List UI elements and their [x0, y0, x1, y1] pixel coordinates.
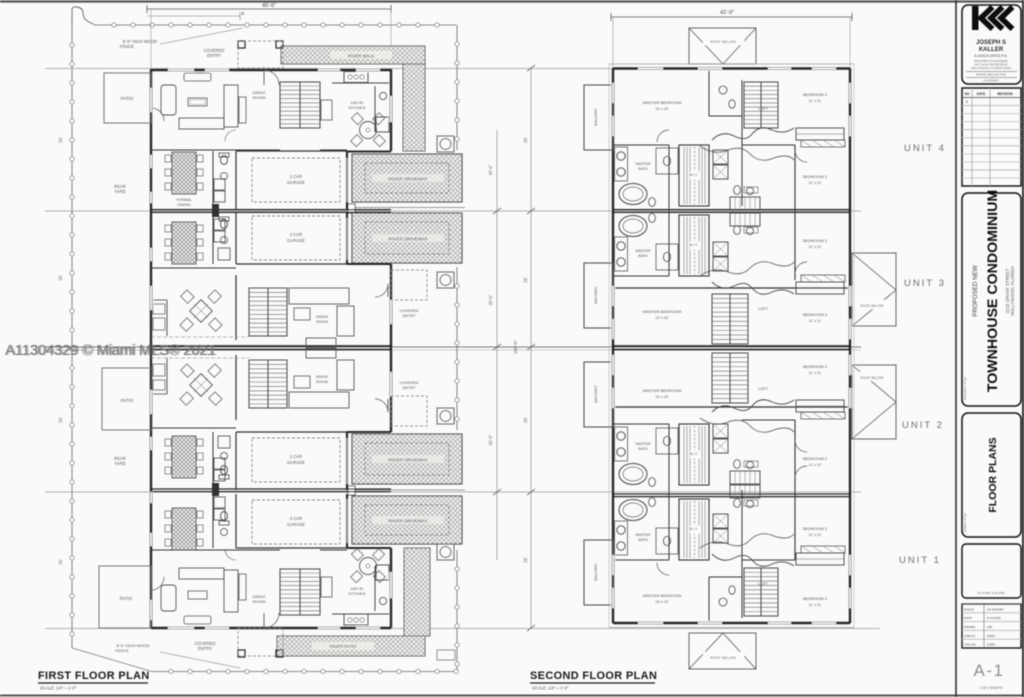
svg-text:ENTRY: ENTRY	[198, 646, 212, 651]
svg-text:11' x 11': 11' x 11'	[809, 99, 822, 103]
svg-text:FENCE: FENCE	[120, 44, 134, 49]
svg-text:11' x 11': 11' x 11'	[809, 603, 822, 607]
svg-text:BALCONY: BALCONY	[594, 563, 598, 581]
svg-text:PAVER DRIVEWAY: PAVER DRIVEWAY	[388, 519, 427, 524]
svg-text:COVERED: COVERED	[400, 309, 419, 313]
svg-text:SCALE: 1/4" = 1'-0": SCALE: 1/4" = 1'-0"	[40, 686, 77, 691]
svg-text:A-1: A-1	[974, 661, 1005, 680]
svg-text:MASTER BEDROOM: MASTER BEDROOM	[643, 593, 681, 598]
svg-text:BEDROOM 2: BEDROOM 2	[803, 526, 828, 531]
svg-text:COVERED: COVERED	[400, 381, 419, 385]
svg-text:PHONE (954) 920-5746: PHONE (954) 920-5746	[976, 73, 1006, 77]
svg-text:BEDROOM 3: BEDROOM 3	[803, 92, 828, 97]
svg-text:PATIO: PATIO	[121, 398, 134, 403]
svg-text:ENTRY: ENTRY	[403, 386, 416, 390]
svg-text:2 CAR: 2 CAR	[290, 174, 302, 179]
svg-text:11' x 12': 11' x 12'	[809, 181, 822, 185]
svg-text:BATH: BATH	[638, 447, 648, 451]
svg-text:PATIO: PATIO	[121, 96, 134, 101]
svg-text:YARD: YARD	[114, 461, 125, 466]
svg-text:11' x 12': 11' x 12'	[809, 245, 822, 249]
svg-text:W.I.C.: W.I.C.	[689, 452, 698, 456]
svg-text:UNIT 1: UNIT 1	[899, 555, 941, 566]
svg-text:DATE: DATE	[977, 92, 985, 96]
svg-text:25': 25'	[58, 417, 63, 423]
svg-text:ROOM: ROOM	[316, 320, 328, 324]
svg-text:1 OF 2 SHEETS: 1 OF 2 SHEETS	[979, 686, 1002, 690]
svg-text:AA 0003447: AA 0003447	[983, 79, 999, 83]
svg-text:REVISION: REVISION	[997, 92, 1013, 96]
svg-text:UNIT 2: UNIT 2	[902, 420, 944, 431]
svg-text:LOFT: LOFT	[758, 307, 768, 311]
svg-text:A11304329 © Miami MLS® 2021: A11304329 © Miami MLS® 2021	[5, 343, 215, 359]
svg-text:BATH: BATH	[638, 538, 648, 542]
svg-text:MASTER BEDROOM: MASTER BEDROOM	[643, 100, 681, 105]
svg-text:EAT-IN: EAT-IN	[351, 101, 363, 105]
svg-text:25': 25'	[523, 277, 528, 283]
svg-text:ROOM: ROOM	[253, 599, 265, 604]
svg-text:GARAGE: GARAGE	[287, 238, 305, 243]
svg-text:GREAT: GREAT	[316, 375, 329, 379]
svg-text:FORMAL: FORMAL	[176, 198, 192, 202]
svg-text:YARD: YARD	[114, 189, 125, 194]
svg-text:UNIT 4: UNIT 4	[904, 143, 946, 154]
svg-text:BATH: BATH	[638, 167, 648, 171]
svg-text:SCALE: SCALE	[964, 607, 974, 611]
svg-text:25': 25'	[523, 557, 528, 563]
svg-text:PAVER DRIVEWAY: PAVER DRIVEWAY	[388, 237, 427, 242]
svg-text:AS SHOWN: AS SHOWN	[987, 607, 1003, 611]
svg-text:PAVER PATIO: PAVER PATIO	[330, 644, 357, 649]
svg-text:MASTER: MASTER	[636, 162, 651, 166]
svg-text:2 CAR: 2 CAR	[290, 516, 302, 521]
svg-text:JSK: JSK	[987, 625, 993, 629]
svg-text:14' x 15': 14' x 15'	[655, 395, 668, 399]
svg-text:MASTER BEDROOM: MASTER BEDROOM	[643, 309, 681, 314]
svg-text:45'-6": 45'-6"	[262, 3, 276, 9]
svg-text:W.I.C.: W.I.C.	[689, 527, 698, 531]
svg-text:PAVER WALK: PAVER WALK	[348, 54, 375, 59]
svg-text:ENTRY: ENTRY	[207, 53, 221, 58]
svg-text:PROJECT TITLE: PROJECT TITLE	[963, 377, 967, 400]
svg-text:FLOOR PLANS: FLOOR PLANS	[987, 437, 999, 512]
svg-text:JOB NO: JOB NO	[964, 634, 976, 638]
svg-text:25': 25'	[523, 137, 528, 143]
svg-text:BEDROOM 2: BEDROOM 2	[803, 456, 828, 461]
svg-text:PATIO: PATIO	[120, 596, 133, 601]
svg-text:20'-0": 20'-0"	[488, 164, 493, 175]
svg-text:GARAGE: GARAGE	[287, 522, 305, 527]
svg-text:25': 25'	[58, 559, 63, 565]
svg-text:HOLLYWOOD, FLORIDA 33020: HOLLYWOOD, FLORIDA 33020	[971, 66, 1011, 70]
svg-text:MASTER BEDROOM: MASTER BEDROOM	[643, 388, 681, 393]
svg-text:14' x 15': 14' x 15'	[655, 316, 668, 320]
svg-text:LOFT: LOFT	[758, 582, 768, 586]
svg-text:GREAT: GREAT	[316, 315, 329, 319]
svg-text:LOFT: LOFT	[758, 387, 768, 391]
svg-text:42'-0": 42'-0"	[720, 10, 734, 16]
svg-text:KITCHEN: KITCHEN	[349, 106, 366, 110]
svg-text:ROOF BELOW: ROOF BELOW	[710, 656, 736, 660]
svg-text:ENTRY: ENTRY	[403, 314, 416, 318]
svg-text:PAVER DRIVEWAY: PAVER DRIVEWAY	[388, 177, 427, 182]
svg-text:ROOF BELOW: ROOF BELOW	[710, 40, 736, 44]
svg-text:PLOTTED: 8-19-2005: PLOTTED: 8-19-2005	[977, 591, 1005, 595]
svg-text:BATH: BATH	[638, 254, 648, 258]
svg-text:ROOF BELOW: ROOF BELOW	[861, 304, 885, 308]
svg-text:SHEET TITLE: SHEET TITLE	[963, 513, 967, 532]
svg-text:MASTER: MASTER	[636, 442, 651, 446]
svg-text:UNIT 3: UNIT 3	[904, 278, 946, 289]
svg-text:FIRST FLOOR PLAN: FIRST FLOOR PLAN	[38, 670, 150, 682]
svg-text:20'-0": 20'-0"	[488, 294, 493, 305]
svg-text:DINING: DINING	[177, 203, 190, 207]
svg-text:TOWNHOUSE CONDOMINIUM: TOWNHOUSE CONDOMINIUM	[985, 190, 1001, 392]
svg-text:EAT-IN: EAT-IN	[351, 587, 363, 591]
svg-text:& ASSOCIATES P.A.: & ASSOCIATES P.A.	[974, 54, 1007, 58]
svg-text:14' x 15': 14' x 15'	[655, 600, 668, 604]
svg-text:FENCE: FENCE	[115, 648, 129, 653]
svg-text:2 CAR: 2 CAR	[290, 454, 302, 459]
svg-text:BEDROOM 2: BEDROOM 2	[803, 238, 828, 243]
svg-text:20'-0": 20'-0"	[488, 434, 493, 445]
svg-text:BEDROOM 2: BEDROOM 2	[803, 174, 828, 179]
svg-text:ROOF BELOW: ROOF BELOW	[861, 376, 885, 380]
svg-text:LOFT: LOFT	[758, 107, 768, 111]
svg-text:14' x 15': 14' x 15'	[655, 107, 668, 111]
svg-text:DRAWN: DRAWN	[964, 625, 975, 629]
svg-text:PROPOSED NEW: PROPOSED NEW	[972, 265, 979, 316]
svg-text:MASTER: MASTER	[636, 533, 651, 537]
svg-text:CAD NO: CAD NO	[964, 643, 976, 647]
svg-text:25': 25'	[523, 417, 528, 423]
svg-text:100'-0": 100'-0"	[513, 340, 518, 354]
svg-text:BEDROOM 3: BEDROOM 3	[803, 364, 828, 369]
svg-text:PAVER DRIVEWAY: PAVER DRIVEWAY	[388, 458, 427, 463]
svg-text:BALCONY: BALCONY	[594, 286, 598, 304]
svg-text:KITCHEN: KITCHEN	[349, 592, 366, 596]
svg-text:2 CAR: 2 CAR	[290, 232, 302, 237]
svg-text:BALCONY: BALCONY	[594, 385, 598, 403]
svg-text:ROOM: ROOM	[316, 380, 328, 384]
svg-text:MASTER: MASTER	[636, 249, 651, 253]
svg-text:GARAGE: GARAGE	[287, 460, 305, 465]
svg-text:GARAGE: GARAGE	[287, 180, 305, 185]
svg-text:SCALE: 1/4" = 1'-0": SCALE: 1/4" = 1'-0"	[532, 686, 569, 691]
svg-text:JOSEPH S: JOSEPH S	[976, 40, 1006, 46]
svg-text:NO: NO	[965, 92, 970, 96]
svg-text:W.I.C.: W.I.C.	[689, 243, 698, 247]
svg-text:ROOM: ROOM	[253, 95, 265, 100]
svg-text:BEDROOM 3: BEDROOM 3	[803, 596, 828, 601]
svg-text:25': 25'	[58, 137, 63, 143]
svg-text:DATE: DATE	[964, 616, 972, 620]
svg-text:W.I.C.: W.I.C.	[689, 173, 698, 177]
svg-text:25': 25'	[58, 275, 63, 281]
svg-text:11' x 11': 11' x 11'	[809, 319, 822, 323]
svg-text:20051: 20051	[987, 643, 996, 647]
svg-text:11' x 12': 11' x 12'	[809, 463, 822, 467]
svg-text:8-19-2005: 8-19-2005	[987, 616, 1001, 620]
svg-text:BEDROOM 3: BEDROOM 3	[803, 312, 828, 317]
svg-text:SECOND FLOOR PLAN: SECOND FLOOR PLAN	[530, 670, 657, 682]
svg-text:HOLLYWOOD, FLORIDA: HOLLYWOOD, FLORIDA	[1010, 266, 1015, 316]
svg-text:11' x 12': 11' x 12'	[809, 533, 822, 537]
svg-text:BALCONY: BALCONY	[594, 108, 598, 126]
svg-text:8': 8'	[241, 11, 245, 16]
svg-text:11' x 11': 11' x 11'	[809, 371, 822, 375]
svg-text:KALLER: KALLER	[979, 47, 1004, 53]
svg-text:20051: 20051	[987, 634, 996, 638]
